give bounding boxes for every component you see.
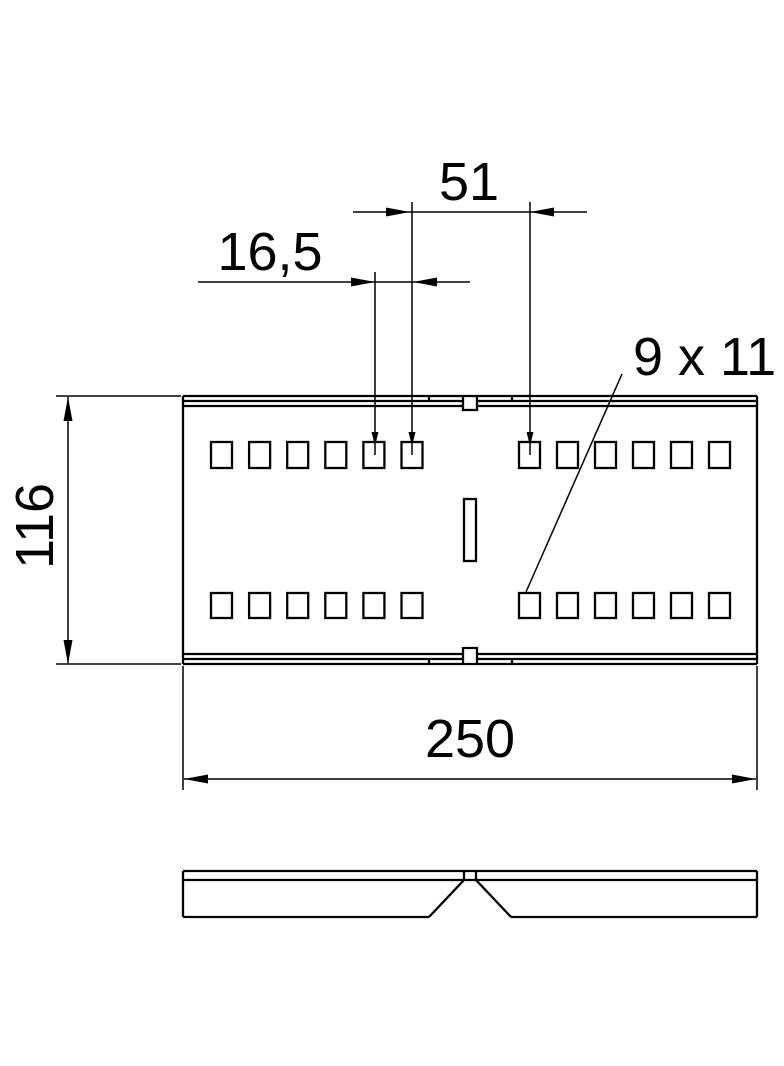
arrowhead — [351, 278, 375, 287]
top-view-plate — [183, 396, 757, 664]
top-center-notch — [463, 396, 477, 410]
arrowhead — [372, 432, 379, 446]
dim-51-label: 51 — [439, 152, 499, 212]
arrowhead — [409, 432, 416, 446]
hole — [287, 442, 308, 468]
holes-bottom-row-left-group — [211, 593, 423, 618]
arrowhead — [530, 208, 554, 217]
arrowhead — [527, 432, 534, 446]
arrowhead — [413, 278, 437, 287]
hole — [709, 442, 730, 468]
hole — [325, 593, 346, 618]
plate-top-rim — [183, 396, 757, 410]
connector-dimension-drawing: 51 16,5 9 x 11 116 — [0, 0, 784, 1066]
dim-116-label: 116 — [5, 483, 65, 569]
hole — [595, 593, 616, 618]
holes-top-row-right-group — [519, 442, 730, 468]
hole — [249, 442, 270, 468]
dimension-16-5: 16,5 — [198, 222, 470, 455]
hole — [633, 442, 654, 468]
hole — [557, 442, 578, 468]
hole — [671, 442, 692, 468]
side-view — [183, 871, 757, 917]
arrowhead — [386, 208, 410, 217]
holes-bottom-row-right-group — [519, 593, 730, 618]
arrowhead — [184, 775, 208, 784]
side-v-cut-right — [476, 880, 511, 917]
hole — [519, 593, 540, 618]
hole — [211, 442, 232, 468]
hole — [671, 593, 692, 618]
hole — [249, 593, 270, 618]
hole — [402, 593, 423, 618]
hole — [325, 442, 346, 468]
arrowhead — [64, 640, 73, 664]
holes-top-row-left-group — [211, 442, 423, 468]
side-v-cut-left — [429, 880, 464, 917]
technical-drawing-canvas: 51 16,5 9 x 11 116 — [0, 0, 784, 1066]
arrowhead — [732, 775, 756, 784]
dimension-116: 116 — [5, 396, 181, 664]
hole — [211, 593, 232, 618]
hole — [363, 442, 384, 468]
hole-size-label: 9 x 11 — [633, 327, 776, 387]
hole — [709, 593, 730, 618]
hole — [595, 442, 616, 468]
dimension-250: 250 — [183, 666, 757, 790]
hole — [363, 593, 384, 618]
center-slot — [464, 499, 476, 561]
arrowhead — [64, 397, 73, 421]
hole — [633, 593, 654, 618]
hole — [557, 593, 578, 618]
hole-size-callout: 9 x 11 — [526, 327, 776, 592]
dim-250-label: 250 — [425, 709, 515, 769]
bottom-center-notch — [463, 648, 477, 664]
dim-16-5-label: 16,5 — [217, 222, 322, 282]
plate-bottom-rim — [183, 648, 757, 664]
hole — [287, 593, 308, 618]
